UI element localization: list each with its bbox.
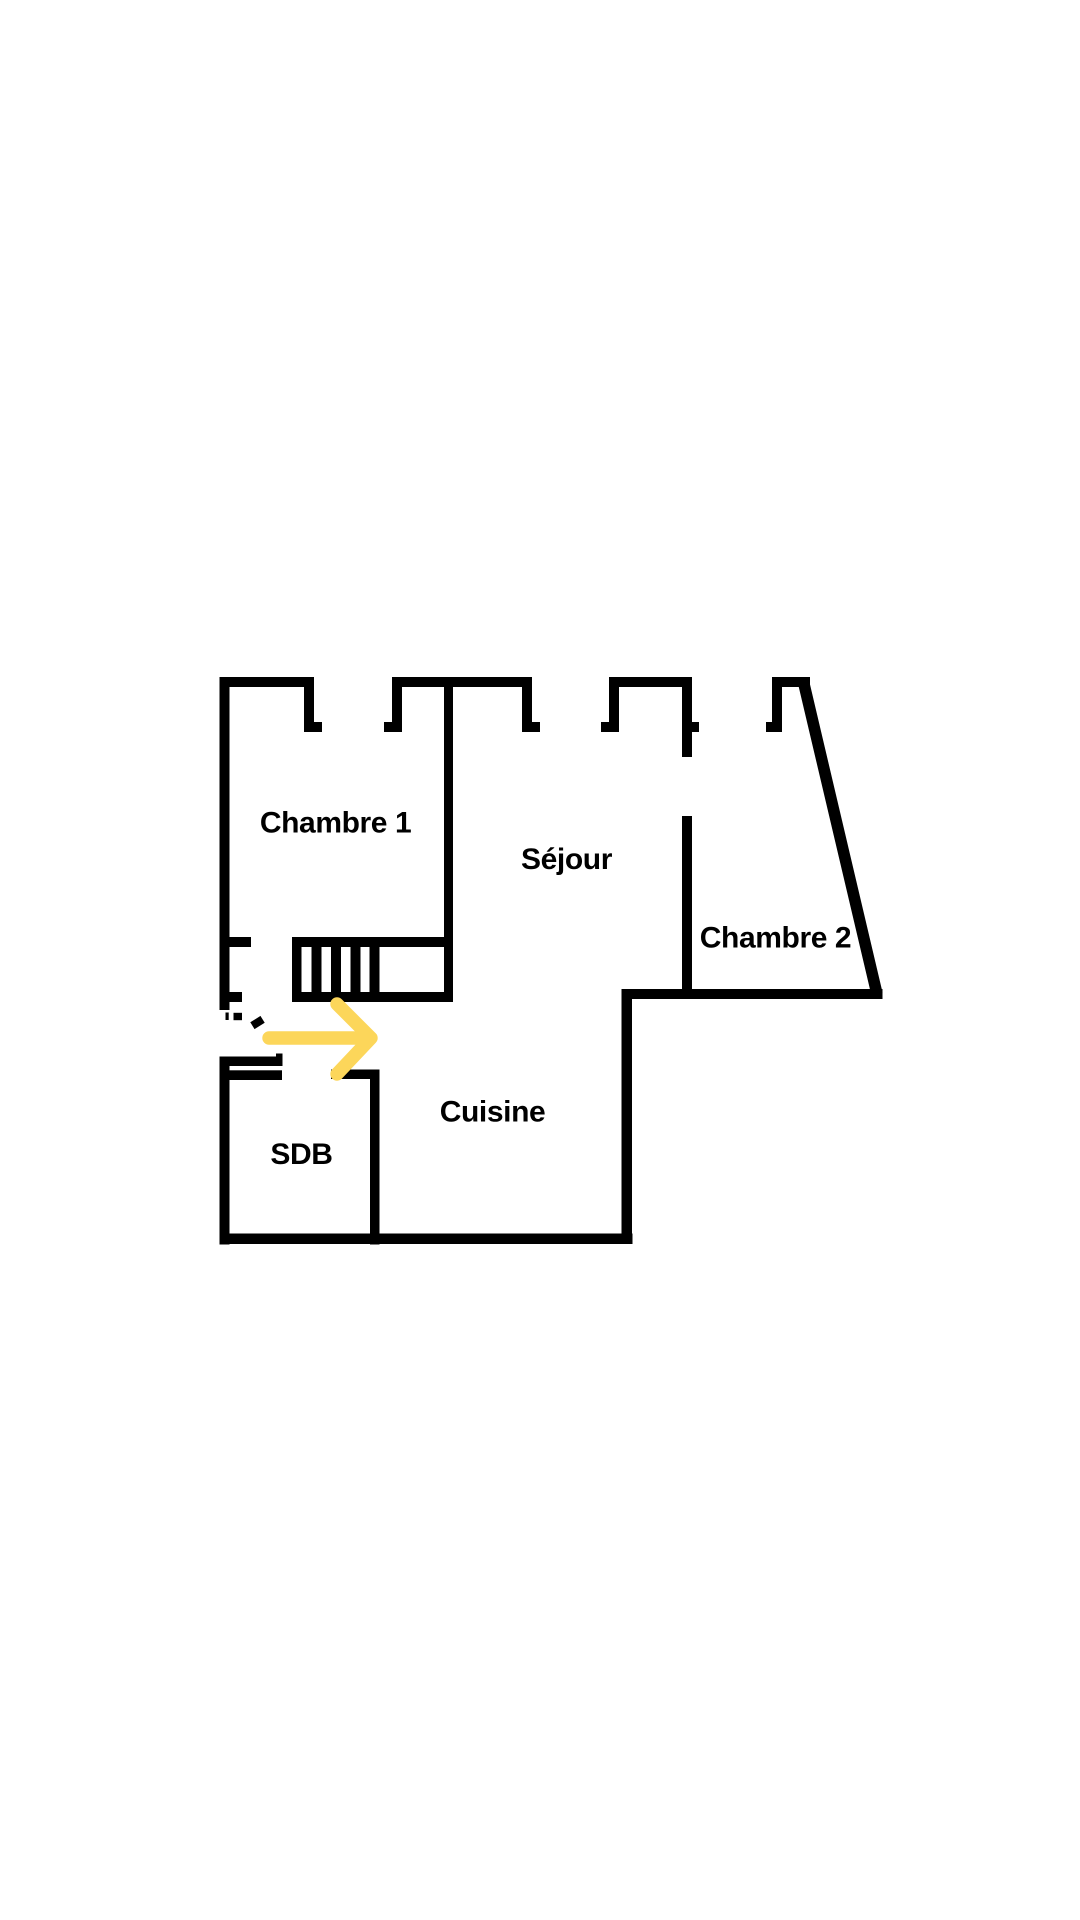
svg-text:Chambre 1: Chambre 1 [260, 807, 411, 840]
svg-text:Chambre 2: Chambre 2 [700, 922, 851, 955]
svg-text:Cuisine: Cuisine [440, 1096, 546, 1129]
svg-text:Séjour: Séjour [521, 843, 613, 876]
svg-text:SDB: SDB [270, 1138, 332, 1171]
